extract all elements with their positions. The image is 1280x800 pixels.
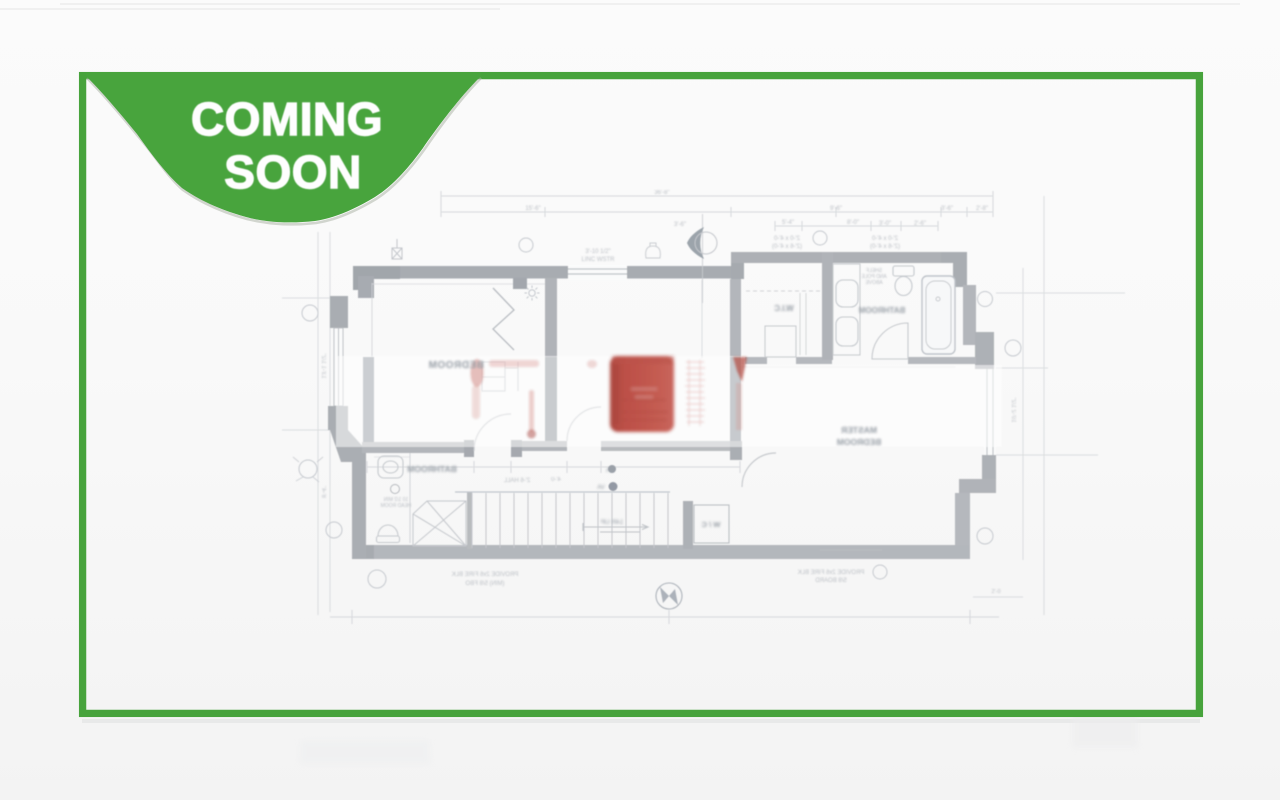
svg-text:14R UP: 14R UP — [601, 519, 624, 526]
svg-text:15'-6": 15'-6" — [525, 206, 540, 212]
svg-text:5'-4": 5'-4" — [782, 220, 794, 226]
svg-text:BATHROOM: BATHROOM — [407, 464, 456, 474]
svg-text:2'-6 HALL: 2'-6 HALL — [503, 478, 530, 484]
svg-text:BEDROOM: BEDROOM — [428, 360, 484, 371]
svg-text:3'-0": 3'-0" — [879, 221, 891, 227]
svg-text:VA: VA — [597, 485, 605, 491]
svg-text:COMING: COMING — [191, 93, 383, 145]
svg-text:2'-0 x 4'-0: 2'-0 x 4'-0 — [871, 236, 898, 242]
svg-text:(2'-6 x 4'-0): (2'-6 x 4'-0) — [870, 244, 900, 250]
svg-text:MASTER: MASTER — [841, 425, 877, 435]
svg-text:HEAD ROOM: HEAD ROOM — [381, 503, 412, 509]
svg-text:8'-4": 8'-4" — [320, 486, 326, 498]
svg-text:3'-10 1/2": 3'-10 1/2" — [585, 249, 610, 255]
svg-text:(MIN) 5/8 FBO: (MIN) 5/8 FBO — [465, 581, 504, 587]
svg-text:LINC WSTR: LINC WSTR — [582, 257, 616, 263]
svg-text:W / C: W / C — [701, 520, 720, 529]
svg-text:(2'-6 x 4'-0): (2'-6 x 4'-0) — [772, 244, 802, 250]
svg-text:2'-6": 2'-6" — [914, 221, 926, 227]
svg-text:PROVIDE 2x6 FIRE BLK: PROVIDE 2x6 FIRE BLK — [798, 570, 865, 576]
svg-text:13'-1 1/2": 13'-1 1/2" — [320, 353, 326, 378]
svg-text:2'-0: 2'-0 — [992, 589, 1001, 595]
svg-text:2'-8": 2'-8" — [976, 206, 988, 212]
svg-text:4'-0: 4'-0 — [550, 477, 560, 483]
svg-text:BATHROOM: BATHROOM — [858, 306, 905, 315]
svg-text:KA: KA — [606, 468, 614, 474]
svg-text:BEDROOM: BEDROOM — [837, 437, 881, 447]
svg-text:3'-6": 3'-6" — [941, 206, 953, 212]
svg-text:SOON: SOON — [224, 146, 361, 198]
svg-text:2'-0 x 4'-0: 2'-0 x 4'-0 — [773, 236, 800, 242]
svg-text:36'-8": 36'-8" — [654, 190, 669, 196]
svg-text:10'-2 1/2": 10'-2 1/2" — [1010, 397, 1016, 422]
svg-text:PROVIDE 2x6 FIRE BLK: PROVIDE 2x6 FIRE BLK — [452, 572, 519, 578]
svg-text:5/8 BOARD: 5/8 BOARD — [815, 578, 847, 584]
svg-text:ABOVE: ABOVE — [865, 280, 883, 286]
svg-text:9'-6": 9'-6" — [830, 206, 842, 212]
svg-text:8'-0": 8'-0" — [847, 220, 859, 226]
svg-text:3'-6": 3'-6" — [674, 222, 686, 228]
svg-text:W.I.C: W.I.C — [774, 304, 794, 313]
